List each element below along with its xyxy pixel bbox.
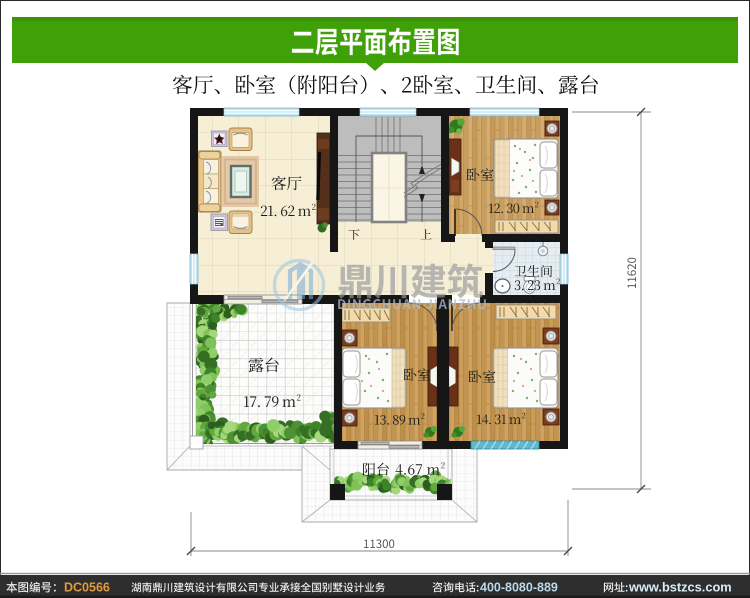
svg-text:DC0566: DC0566 (64, 581, 110, 595)
svg-text:www.bstzcs.com: www.bstzcs.com (628, 580, 732, 595)
svg-text:400-8080-889: 400-8080-889 (480, 581, 558, 595)
